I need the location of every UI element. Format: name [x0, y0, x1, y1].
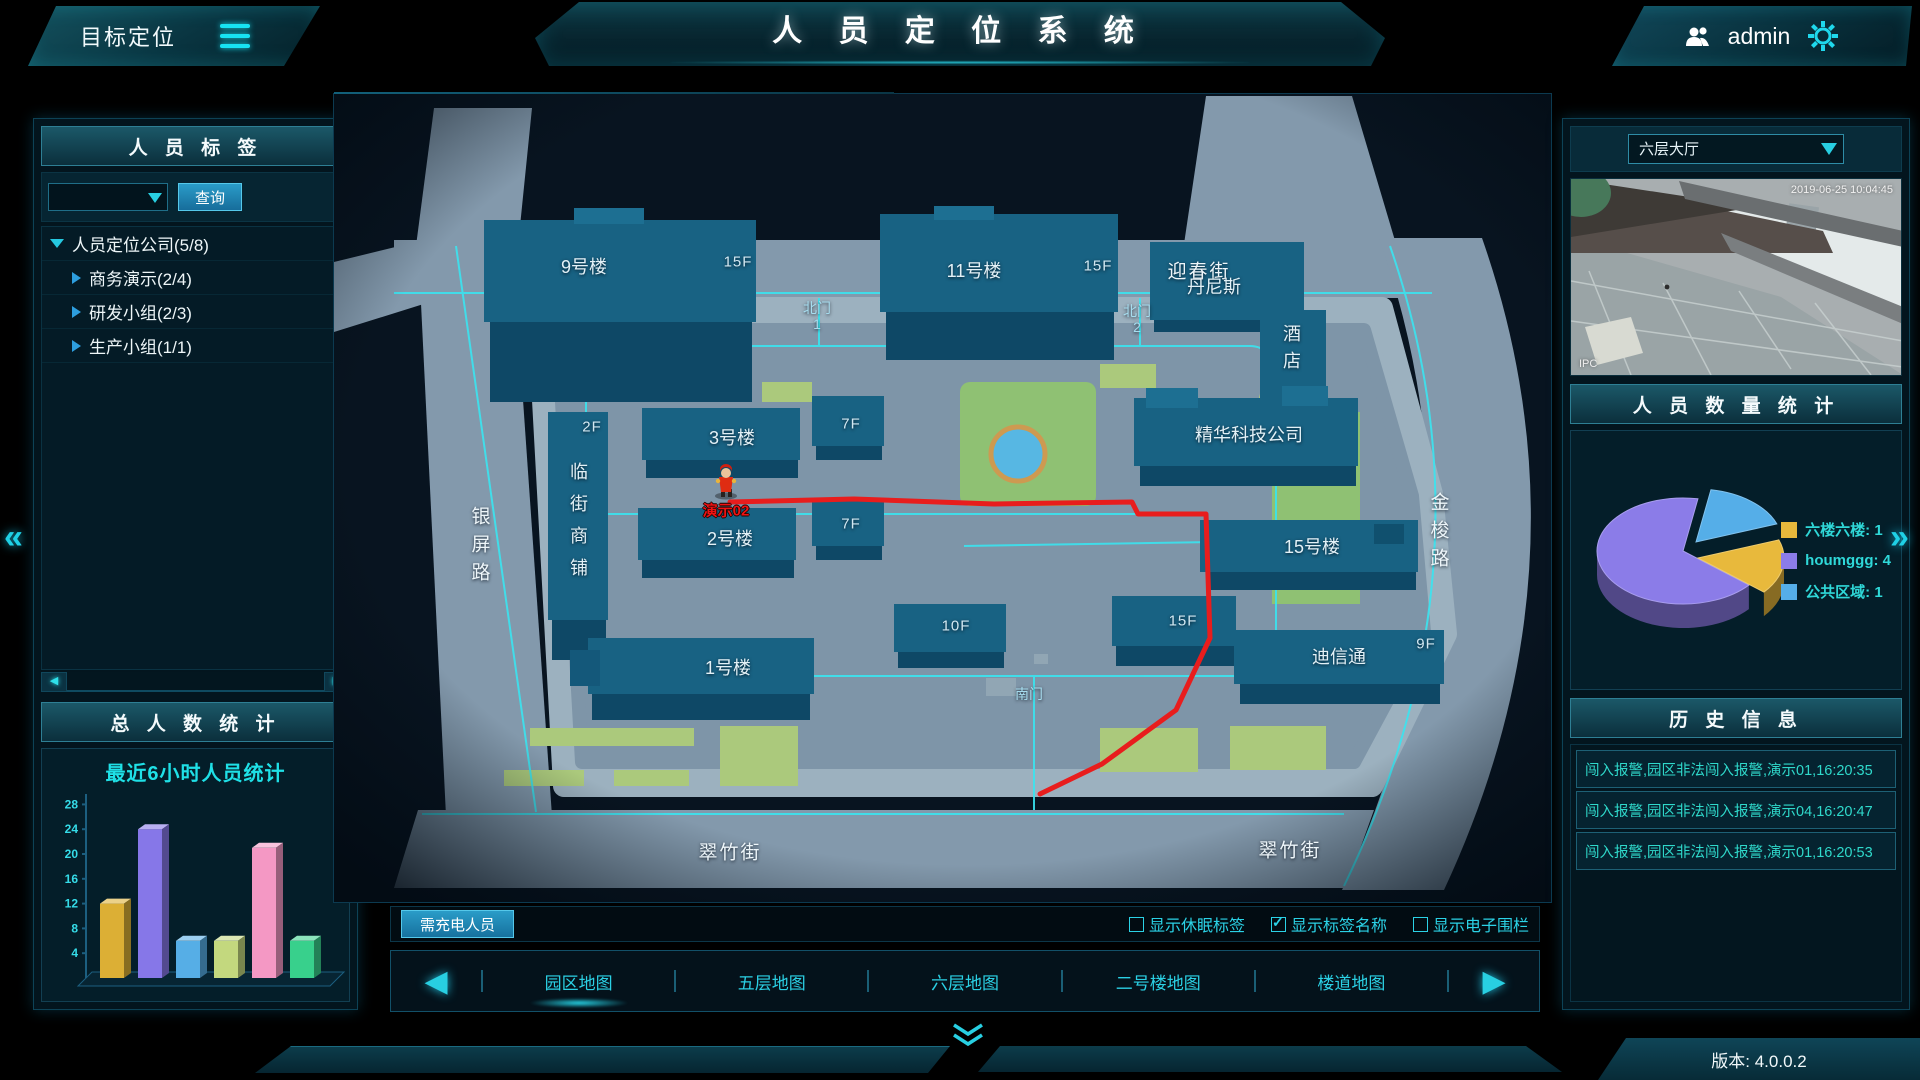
- map-vignette: [334, 94, 1551, 902]
- tree-horizontal-scrollbar[interactable]: ◀ ▶: [41, 672, 350, 692]
- checkbox-show-sleep-tags[interactable]: 显示休眠标签: [1129, 912, 1245, 936]
- tab-corridor-map[interactable]: 楼道地图: [1256, 961, 1447, 1002]
- checkbox-show-tag-names[interactable]: 显示标签名称: [1271, 912, 1387, 936]
- tabs-next-icon[interactable]: ▶: [1449, 964, 1539, 999]
- campus-map-canvas: [334, 94, 1551, 902]
- tree-item-company[interactable]: 人员定位公司(5/8): [42, 227, 349, 261]
- query-button[interactable]: 查询: [178, 183, 242, 211]
- svg-text:16: 16: [65, 872, 79, 886]
- need-charge-button[interactable]: 需充电人员: [401, 910, 514, 938]
- checkbox-checked-icon[interactable]: [1271, 917, 1286, 932]
- tag-search-row: 查询: [41, 172, 350, 222]
- tree-collapsed-icon[interactable]: [72, 306, 81, 318]
- campus-3d-map[interactable]: 9号楼 15F 11号楼 15F 迎春街 北门1 北门2 丹尼斯 酒店 精华科技…: [333, 93, 1552, 903]
- page-title: 人 员 定 位 系 统: [535, 2, 1385, 66]
- legend-swatch: [1781, 553, 1797, 569]
- camera-select-row: 六层大厅: [1570, 126, 1902, 172]
- bar-chart-title: 最近6小时人员统计: [42, 757, 349, 786]
- map-tabs-bar: ◀ 园区地图 五层地图 六层地图 二号楼地图 楼道地图 ▶: [390, 950, 1540, 1012]
- tab-campus-map[interactable]: 园区地图: [483, 961, 674, 1002]
- collapse-right-icon[interactable]: »: [1890, 518, 1909, 557]
- version-text: 版本: 4.0.0.2: [1711, 1047, 1806, 1072]
- tree-item-production-group[interactable]: 生产小组(1/1): [42, 329, 349, 363]
- collapse-down-icon[interactable]: [948, 1022, 988, 1048]
- camera-feed: 2019-06-25 10:04:45 IPC: [1570, 178, 1902, 376]
- camera-location-dropdown[interactable]: 六层大厅: [1628, 134, 1844, 164]
- history-row[interactable]: 闯入报警,园区非法闯入报警,演示04,16:20:47: [1576, 791, 1896, 829]
- monitoring-panel: 六层大厅 2019-06-25 10:04:45 IPC 人 员 数 量 统 计: [1562, 118, 1910, 1010]
- camera-location-value: 六层大厅: [1639, 141, 1699, 158]
- menu-title: 目标定位: [80, 20, 176, 52]
- hourly-stats-card: 最近6小时人员统计 481216202428: [41, 748, 350, 1002]
- map-controls: 需充电人员 显示休眠标签 显示标签名称 显示电子围栏 ◀ 园区地图 五层地图 六…: [390, 906, 1540, 1022]
- tree-collapsed-icon[interactable]: [72, 340, 81, 352]
- version-bar: 版本: 4.0.0.2: [1598, 1038, 1920, 1080]
- tabs-prev-icon[interactable]: ◀: [391, 964, 481, 999]
- history-header: 历 史 信 息: [1570, 698, 1902, 738]
- total-count-header: 总 人 数 统 计: [41, 702, 350, 742]
- gear-icon[interactable]: [1806, 19, 1840, 53]
- username[interactable]: admin: [1728, 23, 1791, 50]
- personnel-tree: 人员定位公司(5/8) 商务演示(2/4) 研发小组(2/3) 生产小组(1/1…: [41, 226, 350, 670]
- legend-item: houmggg: 4: [1781, 552, 1891, 569]
- legend-swatch: [1781, 522, 1797, 538]
- user-bar: admin: [1612, 6, 1912, 66]
- svg-text:4: 4: [71, 946, 78, 960]
- history-row[interactable]: 闯入报警,园区非法闯入报警,演示01,16:20:35: [1576, 750, 1896, 788]
- users-icon: [1684, 25, 1712, 47]
- checkbox-icon[interactable]: [1129, 917, 1144, 932]
- svg-text:28: 28: [65, 797, 79, 811]
- camera-still-image: [1571, 179, 1902, 375]
- tab-building2-map[interactable]: 二号楼地图: [1063, 961, 1254, 1002]
- scrollbar-track[interactable]: [67, 672, 324, 692]
- people-count-card: 六楼六楼: 1 houmggg: 4 公共区域: 1: [1570, 430, 1902, 690]
- tag-filter-dropdown[interactable]: [48, 183, 168, 211]
- pie-legend: 六楼六楼: 1 houmggg: 4 公共区域: 1: [1781, 519, 1891, 602]
- scroll-left-icon[interactable]: ◀: [41, 672, 67, 692]
- collapse-left-icon[interactable]: «: [4, 518, 23, 557]
- tree-item-rd-group[interactable]: 研发小组(2/3): [42, 295, 349, 329]
- hamburger-menu-icon[interactable]: [220, 24, 250, 48]
- app-title-bar: 人 员 定 位 系 统: [535, 2, 1385, 66]
- camera-watermark: IPC: [1579, 358, 1597, 370]
- tab-floor5-map[interactable]: 五层地图: [676, 961, 867, 1002]
- tags-panel-header: 人 员 标 签: [41, 126, 350, 166]
- svg-text:8: 8: [71, 921, 78, 935]
- app-menu-bar: 目标定位: [28, 6, 320, 66]
- svg-text:12: 12: [65, 897, 79, 911]
- people-count-header: 人 员 数 量 统 计: [1570, 384, 1902, 424]
- history-list: 闯入报警,园区非法闯入报警,演示01,16:20:35 闯入报警,园区非法闯入报…: [1570, 744, 1902, 1002]
- tree-expanded-icon[interactable]: [50, 239, 64, 248]
- legend-item: 六楼六楼: 1: [1781, 519, 1891, 540]
- chevron-down-icon: [1821, 143, 1837, 155]
- tree-item-business-demo[interactable]: 商务演示(2/4): [42, 261, 349, 295]
- display-options-row: 需充电人员 显示休眠标签 显示标签名称 显示电子围栏: [390, 906, 1540, 942]
- personnel-tags-panel: 人 员 标 签 查询 人员定位公司(5/8) 商务演示(2/4) 研发小组(2/…: [33, 118, 358, 1010]
- svg-text:20: 20: [65, 847, 79, 861]
- checkbox-show-fences[interactable]: 显示电子围栏: [1413, 912, 1529, 936]
- chevron-down-icon: [148, 193, 162, 203]
- legend-swatch: [1781, 584, 1797, 600]
- camera-timestamp: 2019-06-25 10:04:45: [1791, 184, 1893, 196]
- footer-decoration-mid: [978, 1046, 1562, 1072]
- footer-decoration-left: [255, 1046, 950, 1073]
- tab-floor6-map[interactable]: 六层地图: [869, 961, 1060, 1002]
- checkbox-icon[interactable]: [1413, 917, 1428, 932]
- legend-item: 公共区域: 1: [1781, 581, 1891, 602]
- hourly-bar-chart: 481216202428: [42, 786, 348, 998]
- history-row[interactable]: 闯入报警,园区非法闯入报警,演示01,16:20:53: [1576, 832, 1896, 870]
- svg-text:24: 24: [65, 822, 79, 836]
- tree-collapsed-icon[interactable]: [72, 272, 81, 284]
